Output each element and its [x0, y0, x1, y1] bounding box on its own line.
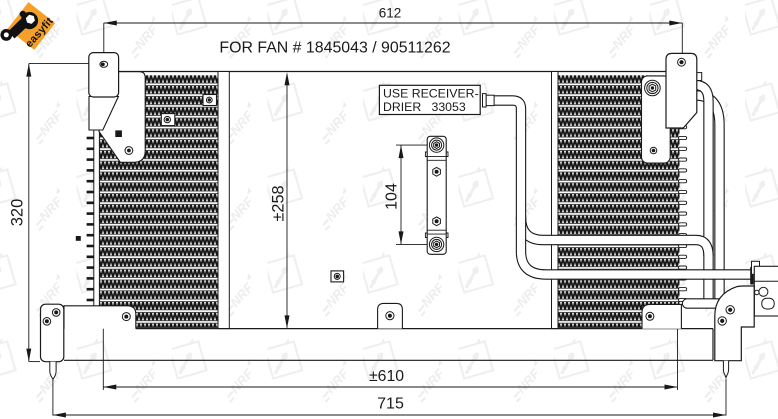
svg-text:612: 612 — [379, 6, 402, 21]
svg-text:USE RECEIVER-: USE RECEIVER- — [383, 87, 479, 101]
svg-text:±258: ±258 — [270, 185, 288, 221]
svg-text:DRIER: DRIER — [383, 100, 421, 114]
svg-text:33053: 33053 — [432, 100, 466, 114]
svg-text:FOR FAN # 1845043 / 90511262: FOR FAN # 1845043 / 90511262 — [219, 40, 450, 57]
svg-text:104: 104 — [384, 183, 401, 210]
svg-text:715: 715 — [377, 396, 404, 413]
svg-text:±610: ±610 — [369, 368, 404, 385]
svg-text:320: 320 — [8, 199, 26, 227]
